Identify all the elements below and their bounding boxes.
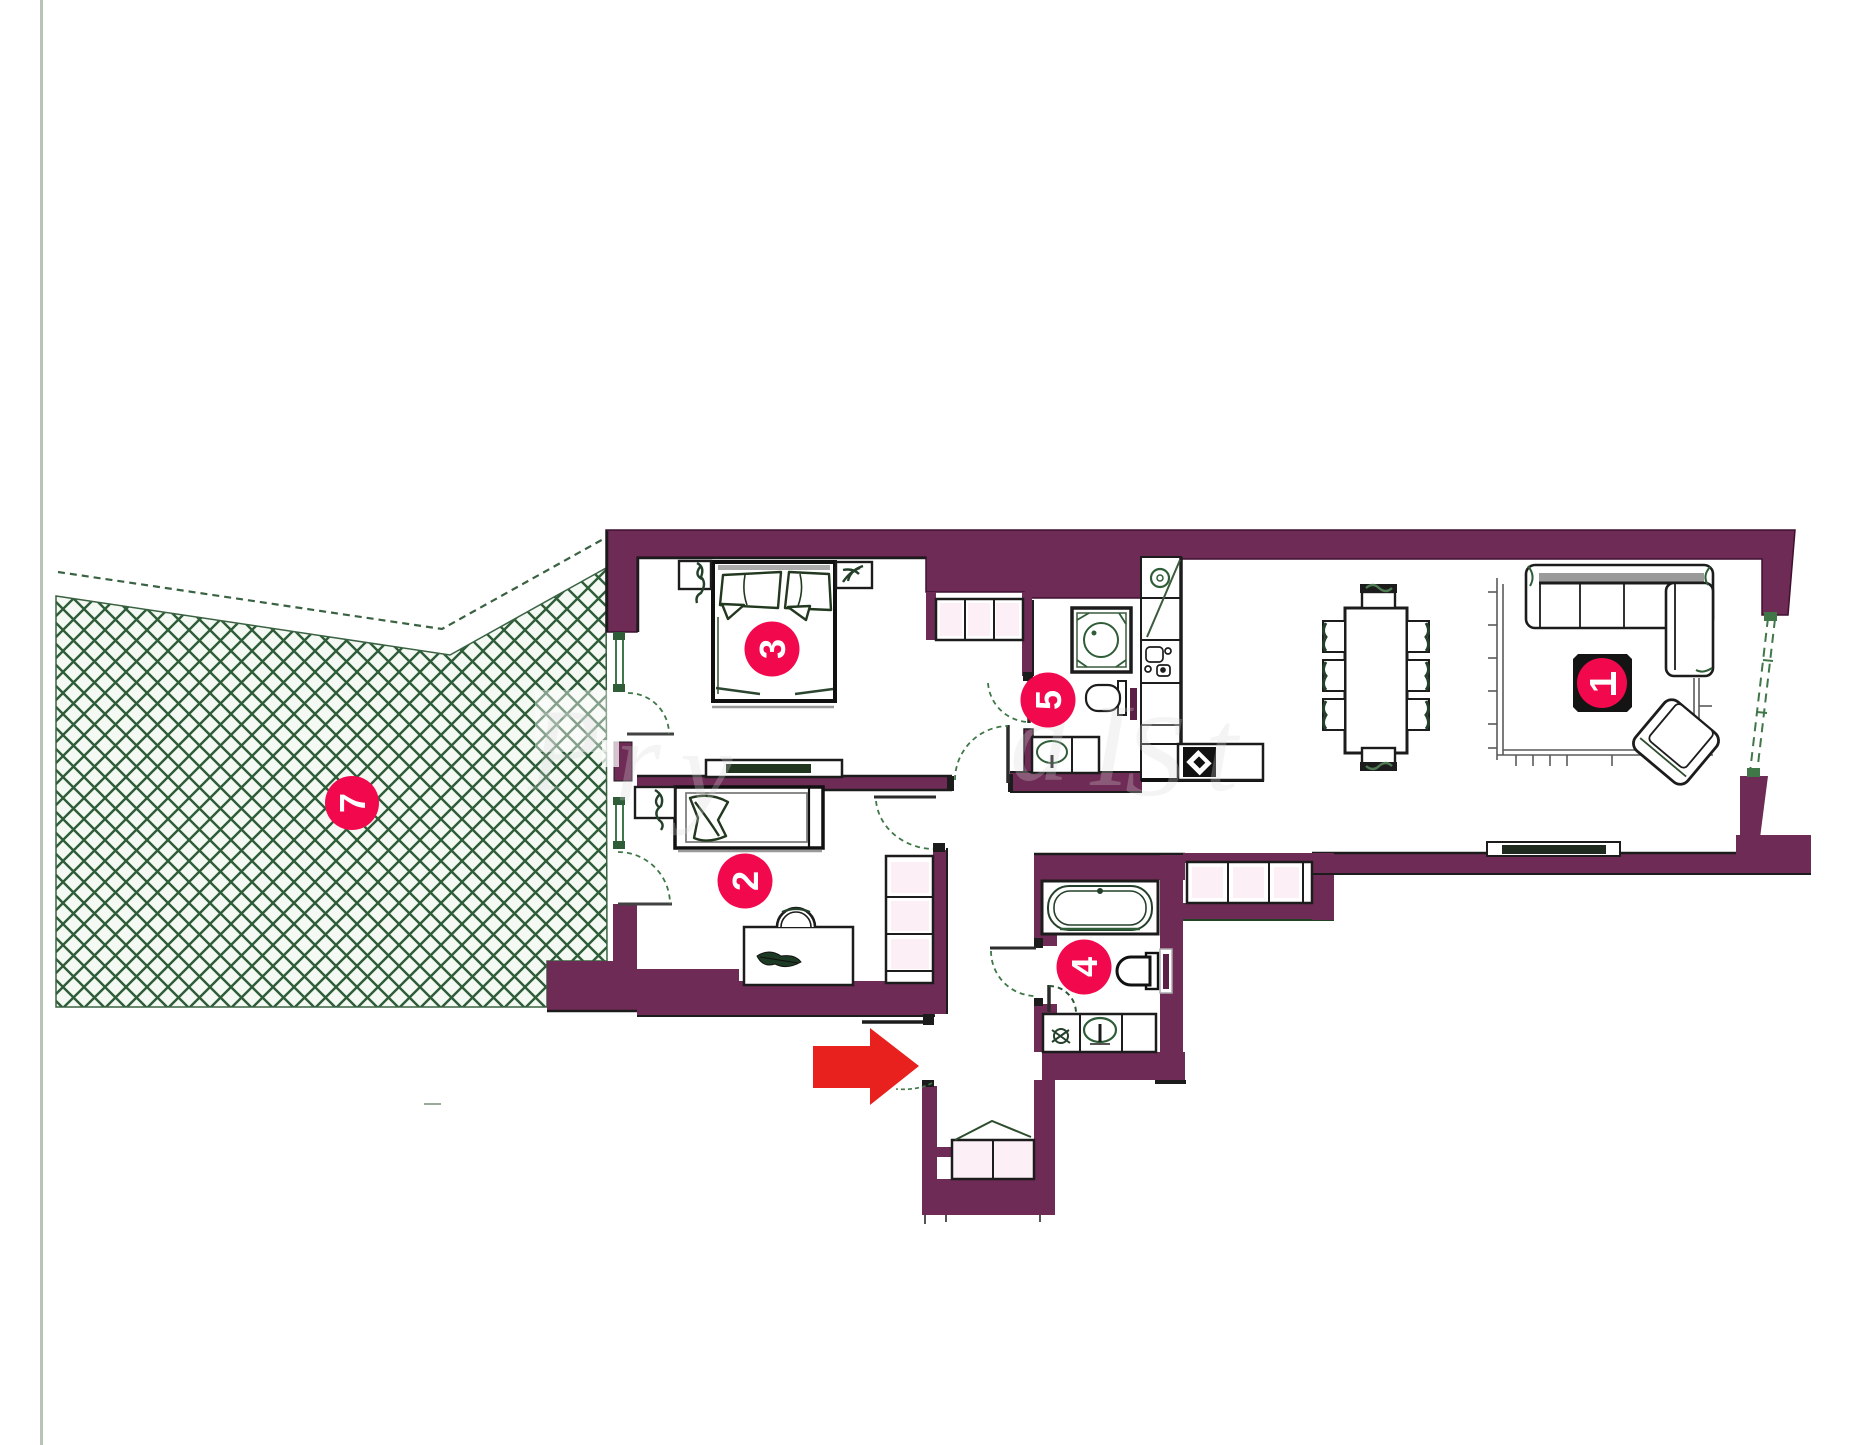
svg-text:2: 2	[725, 871, 766, 891]
svg-text:t: t	[1205, 685, 1241, 816]
svg-text:7: 7	[332, 793, 373, 813]
svg-text:3: 3	[752, 639, 793, 659]
svg-text:5: 5	[1028, 690, 1069, 710]
svg-text:P: P	[527, 685, 600, 816]
svg-text:y: y	[670, 705, 733, 836]
svg-text:r: r	[615, 695, 662, 826]
svg-text:4: 4	[1064, 957, 1105, 977]
svg-text:S: S	[1125, 690, 1184, 821]
svg-text:1: 1	[1582, 673, 1623, 693]
